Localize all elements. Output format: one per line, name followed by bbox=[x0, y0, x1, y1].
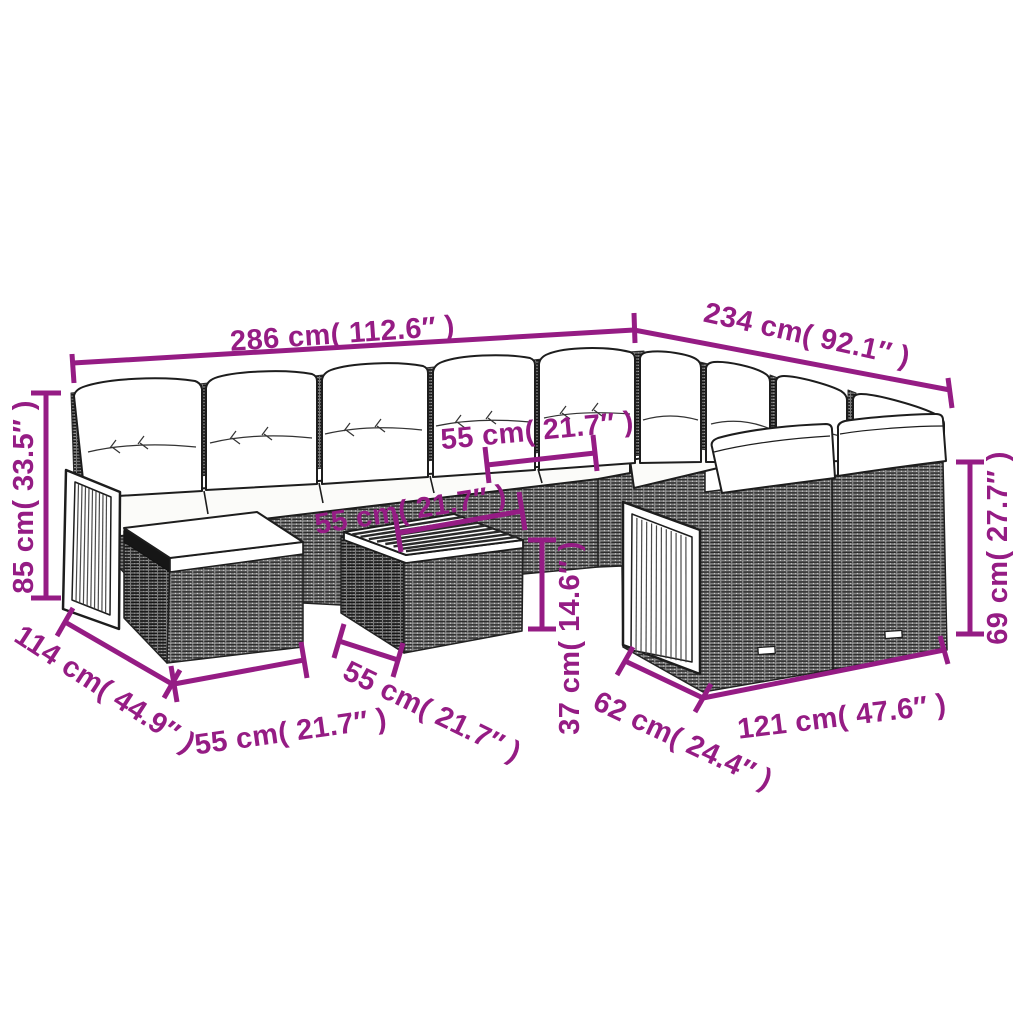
svg-text:37 cm( 14.6″ ): 37 cm( 14.6″ ) bbox=[554, 541, 586, 735]
svg-text:69 cm( 27.7″ ): 69 cm( 27.7″ ) bbox=[982, 451, 1014, 645]
svg-text:85 cm( 33.5″ ): 85 cm( 33.5″ ) bbox=[8, 400, 40, 594]
svg-text:286 cm( 112.6″ ): 286 cm( 112.6″ ) bbox=[229, 310, 456, 358]
svg-text:121 cm( 47.6″ ): 121 cm( 47.6″ ) bbox=[736, 688, 948, 745]
svg-text:55 cm( 21.7″ ): 55 cm( 21.7″ ) bbox=[193, 703, 389, 762]
